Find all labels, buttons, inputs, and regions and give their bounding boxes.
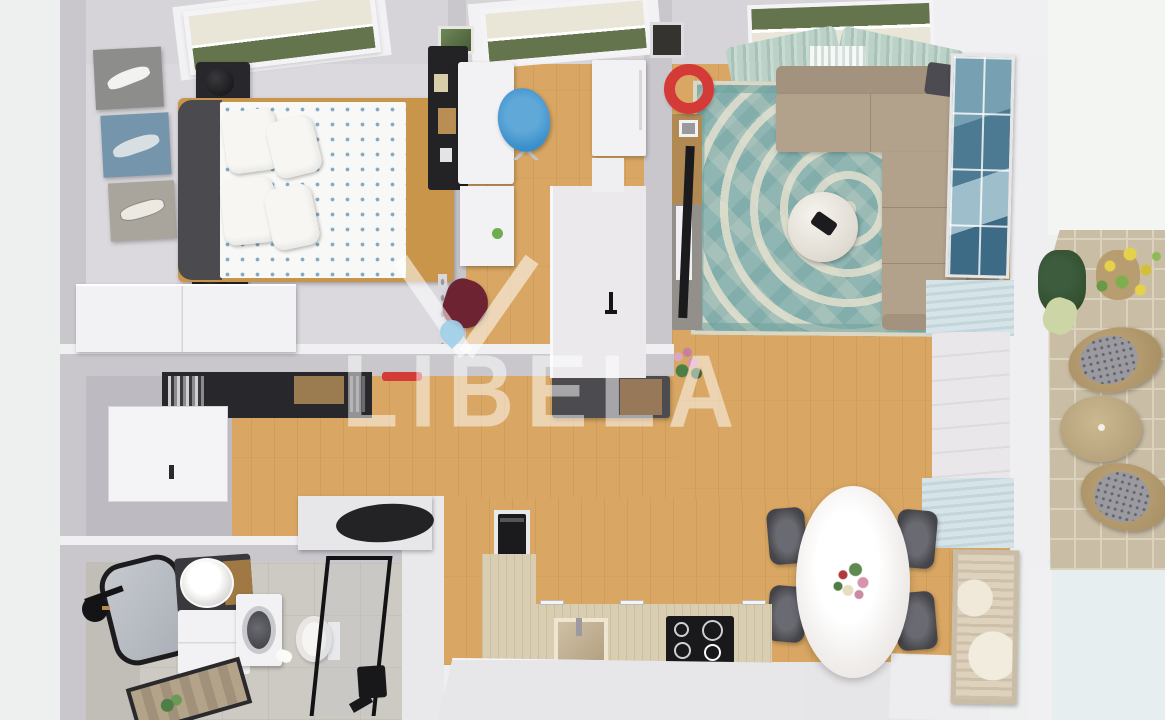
counter-faucet — [605, 310, 617, 314]
hall-white-counter — [550, 186, 646, 378]
window-blind-upper — [926, 280, 1014, 336]
burner — [674, 622, 689, 637]
red-wall-accent — [382, 372, 422, 381]
small-wall-frame — [679, 120, 698, 137]
induction-cooktop — [666, 616, 734, 664]
table-lamp — [206, 68, 234, 96]
boat-art-tile-middle — [100, 112, 171, 177]
white-door — [108, 406, 228, 502]
black-oval-top — [335, 501, 435, 546]
dark-wall-picture — [650, 22, 684, 58]
burner — [704, 644, 721, 661]
tall-white-cabinet — [592, 60, 646, 156]
boat-icon — [111, 131, 161, 161]
boat-art-tile-top — [93, 47, 164, 110]
burner — [674, 642, 691, 659]
sink-faucet — [576, 618, 582, 636]
book-spines — [350, 376, 366, 412]
kitchen-sink — [554, 618, 608, 664]
washer-door — [242, 606, 276, 654]
cabinet-handle — [742, 600, 766, 605]
table-decor-black — [810, 210, 838, 236]
plant-dot — [492, 228, 503, 239]
exterior-right-bottom — [1040, 560, 1165, 720]
burner — [702, 620, 723, 641]
yellow-flower-plant — [1086, 234, 1165, 314]
balcony-round-table — [1060, 396, 1142, 462]
sofa-seat-top — [776, 94, 966, 152]
flower-bouquet — [828, 554, 878, 606]
oven-handle — [500, 518, 524, 522]
desk-cabinet — [460, 186, 514, 266]
wood-decor-box — [294, 376, 344, 404]
side-table-black-top — [298, 496, 432, 550]
beige-framed-wall-art — [951, 549, 1020, 704]
blue-abstract-wall-art — [945, 53, 1015, 279]
cabinet-handle — [620, 600, 644, 605]
gray-bench — [552, 376, 670, 418]
table-center-dot — [1098, 424, 1105, 431]
cabinet-handle — [639, 70, 642, 130]
mat-plant — [151, 687, 191, 720]
low-white-cabinet — [592, 158, 624, 192]
boat-triptych-wall-art — [89, 46, 183, 246]
red-round-mirror — [664, 64, 714, 114]
kitchen-peninsula — [438, 658, 802, 720]
wardrobe — [76, 284, 296, 352]
lamp-pin — [102, 606, 110, 610]
bench-wood-drawer — [620, 379, 662, 415]
floor-plan-render: LIBELA — [0, 0, 1165, 720]
exterior-right-top — [1048, 0, 1165, 235]
door-handle — [169, 465, 174, 479]
round-coffee-table — [788, 192, 858, 262]
art-grid-lines — [948, 56, 1012, 275]
counter-faucet — [609, 292, 613, 312]
bed-headboard — [178, 100, 222, 280]
boat-art-tile-bottom — [108, 180, 177, 241]
orchid-plant — [672, 340, 706, 384]
shower-fixture — [357, 665, 387, 699]
boat-icon — [105, 63, 151, 92]
cabinet-handle — [540, 600, 564, 605]
wall-lamp — [82, 596, 108, 622]
window-white-panel — [932, 332, 1010, 482]
round-washbasin — [180, 558, 234, 608]
right-outer-wall — [1010, 54, 1048, 570]
boat-icon — [118, 195, 167, 224]
bottom-right-wall-corner — [1028, 566, 1052, 720]
